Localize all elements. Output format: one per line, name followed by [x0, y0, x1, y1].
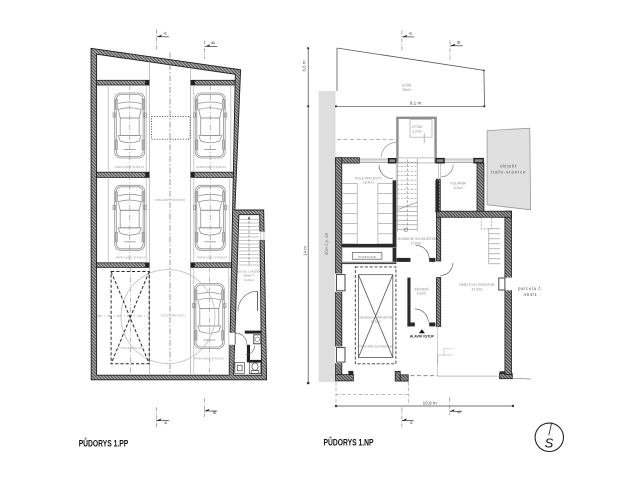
svg-text:17,8m2: 17,8m2: [411, 242, 422, 246]
svg-text:POPELNICE: POPELNICE: [358, 255, 376, 259]
svg-text:484/1: 484/1: [524, 292, 538, 297]
svg-text:A: A: [408, 31, 413, 35]
svg-text:37,2m2: 37,2m2: [471, 288, 482, 292]
svg-text:6,6 m: 6,6 m: [302, 60, 307, 71]
svg-text:PARKOVACÍ STÁNÍ 04: PARKOVACÍ STÁNÍ 04: [197, 255, 227, 259]
svg-text:PARKOVACÍ STÁNÍ 02: PARKOVACÍ STÁNÍ 02: [196, 165, 226, 169]
svg-text:CHODBA SE SCHODIŠTĚM: CHODBA SE SCHODIŠTĚM: [396, 236, 437, 241]
svg-text:trafo-stanice: trafo-stanice: [491, 170, 527, 175]
svg-text:VÝTAH PRO AUTO: VÝTAH PRO AUTO: [117, 346, 143, 350]
svg-text:dům č.p. 68: dům č.p. 68: [324, 232, 329, 255]
svg-text:VÝTAH PRO AUTOMOBILY: VÝTAH PRO AUTOMOBILY: [357, 345, 394, 349]
svg-text:16,4m2: 16,4m2: [363, 181, 374, 185]
svg-text:B: B: [457, 410, 462, 413]
svg-text:HLAVNÍ VSTUP: HLAVNÍ VSTUP: [410, 334, 435, 339]
svg-text:9,1 m: 9,1 m: [410, 100, 422, 105]
svg-text:PŮDORYS 1.PP: PŮDORYS 1.PP: [79, 437, 129, 448]
svg-text:objekt: objekt: [500, 164, 517, 169]
svg-text:PARKOVACÍ STÁNÍ 01: PARKOVACÍ STÁNÍ 01: [115, 165, 145, 169]
svg-text:14 m: 14 m: [303, 246, 308, 256]
svg-text:PARKOVACÍ STÁNÍ 05: PARKOVACÍ STÁNÍ 05: [194, 357, 224, 361]
svg-text:A: A: [163, 31, 168, 35]
svg-text:ZÁDVEŘÍ: ZÁDVEŘÍ: [414, 286, 428, 291]
svg-text:5,2m2: 5,2m2: [454, 186, 463, 190]
svg-text:B: B: [212, 411, 217, 414]
svg-text:50m2: 50m2: [402, 88, 411, 92]
svg-text:S: S: [545, 436, 554, 451]
svg-text:parcela č.: parcela č.: [518, 286, 543, 291]
svg-text:PŮDORYS 1.NP: PŮDORYS 1.NP: [324, 437, 374, 448]
svg-text:3,2m2: 3,2m2: [412, 129, 421, 133]
svg-text:10,9 m: 10,9 m: [423, 401, 437, 406]
svg-text:15,2m2: 15,2m2: [371, 319, 381, 323]
svg-text:PARKOVACÍ STÁNÍ 03: PARKOVACÍ STÁNÍ 03: [116, 255, 146, 259]
svg-text:6,1m2: 6,1m2: [417, 292, 426, 296]
svg-text:TOČNA PRO AUTO: TOČNA PRO AUTO: [160, 313, 186, 318]
svg-text:B: B: [211, 41, 216, 44]
svg-text:DVŮR: DVŮR: [402, 83, 412, 88]
svg-text:B: B: [456, 41, 461, 44]
svg-text:12,8m2: 12,8m2: [244, 278, 254, 282]
svg-text:OBSLUŽNÝ PROSTOR: OBSLUŽNÝ PROSTOR: [155, 197, 186, 202]
